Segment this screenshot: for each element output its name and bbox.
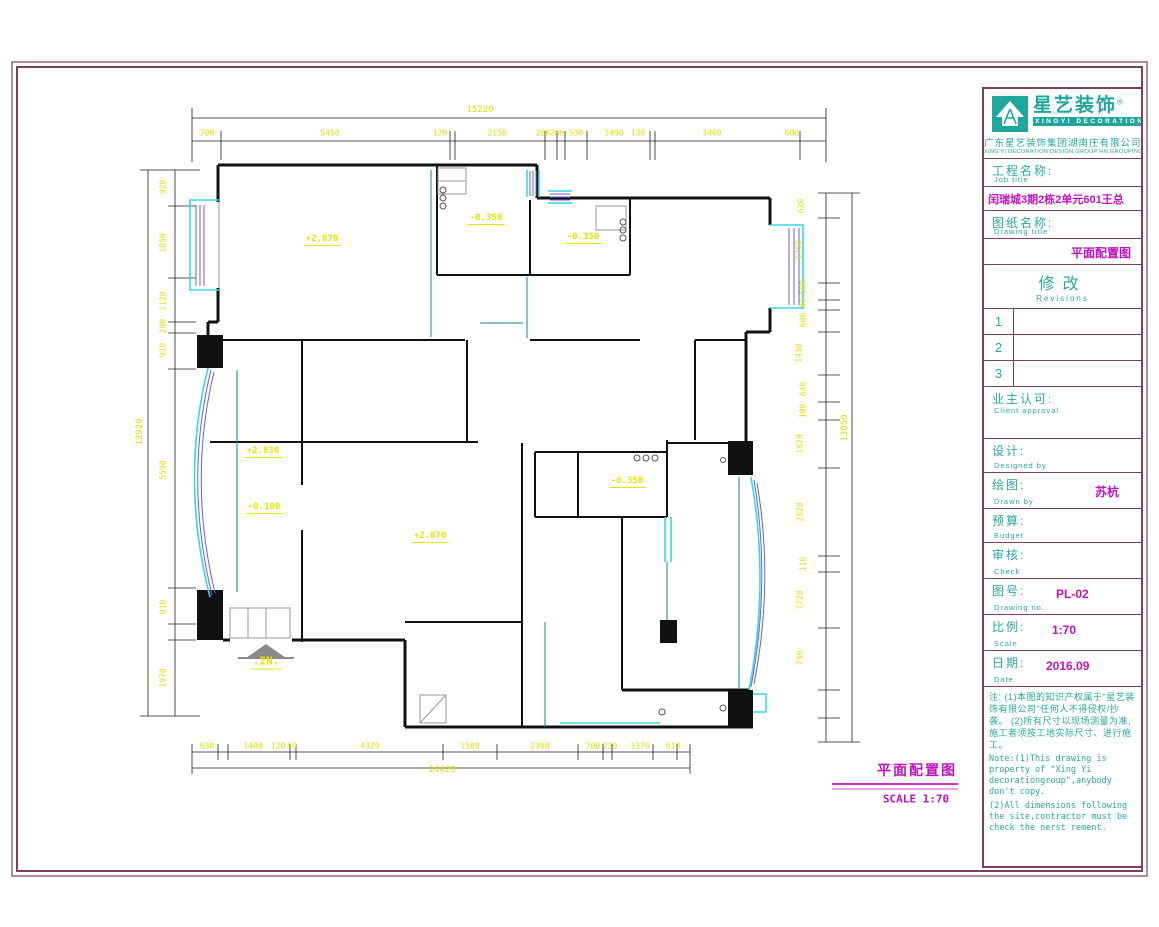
- date-value: 2016.09: [1046, 659, 1089, 673]
- dim-left-seg: 5590: [159, 460, 168, 479]
- dim-right-seg: 1430: [795, 343, 804, 362]
- dim-right-seg: 620: [797, 199, 806, 213]
- budget-label-en: Budget: [994, 531, 1024, 540]
- dim-left-seg: 1850: [159, 233, 168, 252]
- dim-right-seg: 640: [799, 382, 808, 396]
- company-name-en: XING'YI DECORATION DESIGN GROUP HN.GROUP…: [984, 149, 1141, 155]
- dim-top-seg: 130: [631, 129, 645, 138]
- check-label-cn: 审核:: [992, 546, 1025, 563]
- revision-row: 2: [984, 335, 1141, 361]
- dim-right-seg: 500: [799, 280, 808, 294]
- drawing-title-value: 平面配置图: [1071, 244, 1131, 261]
- client-approval-row: 业主认可: Client approval: [984, 387, 1141, 439]
- dim-bottom-seg: 50: [287, 742, 297, 751]
- revision-entry: [1014, 335, 1141, 360]
- budget-row: 预算: Budget: [984, 509, 1141, 543]
- designer-label-en: Designed by: [994, 461, 1047, 470]
- room-level-label: -0.350: [565, 232, 602, 244]
- designer-row: 设计: Designed by: [984, 439, 1141, 473]
- dim-right-seg: 2520: [796, 502, 805, 521]
- room-level-label: +2.870: [412, 531, 449, 543]
- dim-bottom-seg: 2390: [530, 742, 549, 751]
- revisions-label-en: Revisions: [984, 294, 1141, 303]
- brand-name-en: XINGYI DECORATION: [1033, 117, 1141, 126]
- client-approval-label-cn: 业主认可:: [992, 390, 1053, 407]
- date-label-cn: 日期:: [992, 654, 1025, 671]
- drawing-title-value-row: 平面配置图: [984, 239, 1141, 265]
- dim-top-seg: 1490: [604, 129, 623, 138]
- notes-text-en-1: Note:(1)This drawing is property of "Xin…: [989, 754, 1136, 798]
- dim-left-seg: 920: [159, 180, 168, 194]
- client-approval-label-en: Client approval: [994, 406, 1059, 415]
- room-level-label: -0.350: [468, 213, 505, 225]
- drawing-footer-title: 平面配置图: [877, 760, 957, 780]
- brand-registered-mark: ®: [1117, 98, 1123, 107]
- job-title-label-en: Job title: [994, 175, 1029, 184]
- scale-label-cn: 比例:: [992, 618, 1025, 635]
- notes-section: 注: (1)本图的知识产权属于"星艺装饰有限公司"任何人不得侵权/抄袭。 (2)…: [984, 687, 1141, 865]
- sheet-border: [12, 62, 1147, 876]
- dim-left-seg: 910: [159, 343, 168, 357]
- dim-top-seg: 700: [200, 129, 214, 138]
- room-level-label: -0.180: [246, 502, 283, 514]
- drawing-sheet: 15220 700 5450 120 2150 280 200 530 1490…: [0, 0, 1159, 927]
- footer-rule: [832, 784, 958, 789]
- window-glass-cyan: [190, 170, 803, 723]
- teal-tracks: [237, 170, 739, 727]
- job-title-label-row: 工程名称: Job title: [984, 159, 1141, 187]
- dim-right-seg: 180: [799, 404, 808, 418]
- dim-top-seg: 280: [536, 129, 550, 138]
- dim-bottom-overall: 14420: [428, 765, 455, 775]
- dim-left-seg: 1120: [159, 291, 168, 310]
- dim-top-seg: 600: [785, 129, 799, 138]
- dim-top-seg: 2150: [487, 129, 506, 138]
- dim-left-seg: 280: [159, 319, 168, 333]
- dim-bottom-seg: 1370: [630, 742, 649, 751]
- title-block: 星艺装饰® XINGYI DECORATION 广东星艺装饰集团湖南庄有限公司 …: [982, 87, 1143, 868]
- revision-row: 3: [984, 361, 1141, 387]
- revisions-header: 修改 Revisions: [984, 265, 1141, 309]
- dim-bottom-seg: 1580: [460, 742, 479, 751]
- revision-number: 2: [984, 335, 1014, 360]
- xingyi-logo-icon: [992, 96, 1028, 132]
- revision-entry: [1014, 361, 1141, 386]
- dim-top-seg: 3460: [702, 129, 721, 138]
- entrance-label: .IN.: [251, 655, 282, 670]
- budget-label-cn: 预算:: [992, 512, 1025, 529]
- scale-value: 1:70: [1052, 623, 1076, 637]
- dim-bottom-seg: 230: [603, 742, 617, 751]
- exterior-walls: [208, 165, 770, 727]
- dim-right-seg: 90: [799, 298, 808, 308]
- drawing-no-label-en: Drawing no.: [994, 603, 1045, 612]
- job-title-value-row: 闰瑞城3期2栋2单元601王总: [984, 187, 1141, 211]
- title-block-logo-row: 星艺装饰® XINGYI DECORATION 广东星艺装饰集团湖南庄有限公司 …: [984, 89, 1141, 159]
- designer-label-cn: 设计:: [992, 442, 1025, 459]
- drawing-no-value: PL-02: [1056, 587, 1089, 601]
- dim-right-seg: 730: [796, 651, 805, 665]
- dim-top-seg: 5450: [320, 129, 339, 138]
- room-level-label: -0.350: [609, 476, 646, 488]
- revisions-label-cn: 修改: [984, 265, 1141, 294]
- drawing-footer-scale: SCALE 1:70: [883, 793, 949, 806]
- revision-number: 3: [984, 361, 1014, 386]
- drawn-by-label-cn: 绘图:: [992, 476, 1025, 493]
- drawing-title-label-row: 图纸名称: Drawing title: [984, 211, 1141, 239]
- drawing-title-label-en: Drawing title: [994, 227, 1048, 236]
- dim-right-seg: 110: [799, 557, 808, 571]
- dim-top-seg: 200: [550, 129, 564, 138]
- dim-bottom-seg: 1480: [243, 742, 262, 751]
- drawing-no-label-cn: 图号:: [992, 582, 1025, 599]
- check-label-en: Check: [994, 567, 1020, 576]
- company-name-cn: 广东星艺装饰集团湖南庄有限公司: [984, 135, 1141, 149]
- brand-name-cn: 星艺装饰: [1033, 95, 1117, 116]
- dim-left-seg: 910: [159, 600, 168, 614]
- revision-row: 1: [984, 309, 1141, 335]
- dim-left-seg: 1970: [159, 668, 168, 687]
- drawn-by-row: 绘图: Drawn by 苏杭: [984, 473, 1141, 509]
- notes-text-en-2: (2)All dimensions following the site,con…: [989, 801, 1136, 834]
- dim-top-overall: 15220: [466, 105, 493, 115]
- drawn-by-value: 苏杭: [1095, 483, 1119, 500]
- scale-row: 比例: Scale 1:70: [984, 615, 1141, 651]
- date-row: 日期: Date 2016.09: [984, 651, 1141, 687]
- dim-right-seg: 1750: [795, 240, 804, 259]
- dim-bottom-seg: 4320: [360, 742, 379, 751]
- scale-label-en: Scale: [994, 639, 1018, 648]
- revision-number: 1: [984, 309, 1014, 334]
- drawing-no-row: 图号: Drawing no. PL-02: [984, 579, 1141, 615]
- drawn-by-label-en: Drawn by: [994, 497, 1034, 506]
- date-label-en: Date: [994, 675, 1014, 684]
- job-title-value: 闰瑞城3期2栋2单元601王总: [988, 191, 1124, 207]
- revision-entry: [1014, 309, 1141, 334]
- dim-bottom-seg: 630: [200, 742, 214, 751]
- dim-bottom-seg: 610: [666, 742, 680, 751]
- dim-top-seg: 120: [433, 129, 447, 138]
- notes-text-cn: 注: (1)本图的知识产权属于"星艺装饰有限公司"任何人不得侵权/抄袭。 (2)…: [989, 691, 1136, 751]
- dim-right-overall: 13050: [840, 414, 850, 441]
- dim-right-seg: 1820: [796, 434, 805, 453]
- dim-right-seg: 600: [799, 313, 808, 327]
- dim-right-seg: 1720: [796, 590, 805, 609]
- dim-top-seg: 530: [569, 129, 583, 138]
- room-level-label: +2.830: [245, 446, 282, 458]
- dim-bottom-seg: 120: [271, 742, 285, 751]
- check-row: 审核: Check: [984, 543, 1141, 579]
- dim-left-overall: 13920: [135, 418, 145, 445]
- window-frames-blue: [196, 171, 799, 687]
- dim-bottom-seg: 700: [586, 742, 600, 751]
- room-level-label: +2.870: [304, 234, 341, 246]
